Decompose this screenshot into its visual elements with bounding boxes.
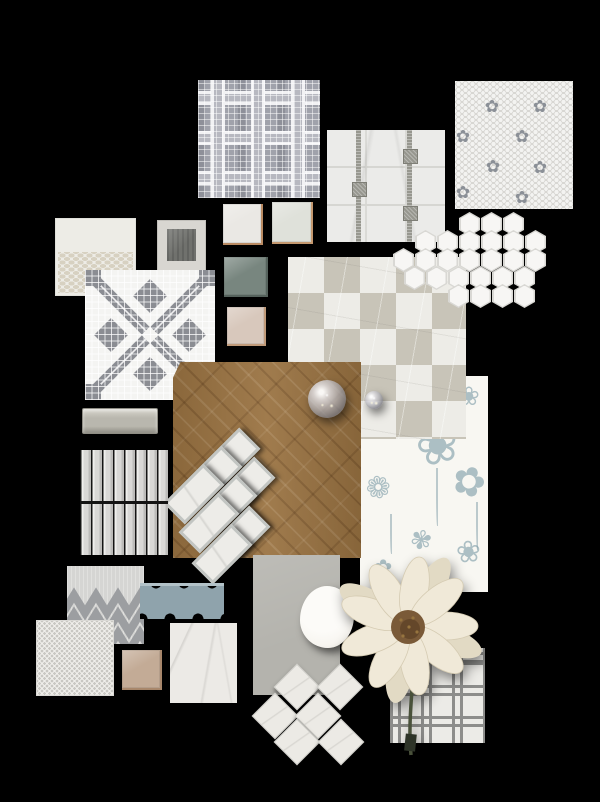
cosmos-flower — [333, 548, 493, 773]
greige-subway-tile — [82, 408, 158, 434]
white-glazed-swatch — [223, 204, 263, 245]
penny-flower-motif: ✿ — [531, 159, 549, 177]
marble-brick-stack — [160, 435, 270, 570]
blush-swatch — [227, 307, 266, 346]
moodboard-canvas: ❀✾❀✿❁✾❀✿✿✿✿✿✿✿✿✿ — [0, 0, 600, 802]
plaid-mosaic-tile — [198, 80, 320, 198]
kitkat-stick-tile — [80, 450, 168, 555]
penny-flower-motif: ✿ — [483, 98, 501, 116]
hexagon-tile — [492, 284, 513, 308]
hexagon-tile — [470, 284, 491, 308]
penny-flower-motif: ✿ — [454, 184, 472, 202]
penny-flower-tile: ✿✿✿✿✿✿✿✿ — [455, 81, 573, 209]
floral-stem — [476, 502, 478, 550]
penny-flower-motif: ✿ — [513, 189, 531, 207]
floral-motif: ❁ — [364, 472, 394, 506]
framed-inner-sample — [167, 229, 196, 261]
glass-sphere-small — [365, 391, 383, 409]
white-marble-tile — [170, 623, 237, 703]
floral-stem — [436, 468, 438, 526]
tile-strip-dot — [352, 182, 367, 197]
glass-sphere-large — [308, 380, 346, 418]
blue-lace-trim-tile — [140, 583, 224, 619]
pale-green-swatch — [272, 202, 313, 244]
tile-strip-dot — [403, 149, 418, 164]
penny-flower-motif: ✿ — [484, 158, 502, 176]
penny-flower-motif: ✿ — [454, 128, 472, 146]
framed-sample — [157, 220, 206, 272]
sage-green-swatch — [224, 257, 268, 297]
bronze-glazed-swatch — [122, 650, 162, 690]
penny-round-tile — [36, 620, 114, 696]
hexagon-mosaic-cluster — [385, 206, 550, 310]
penny-flower-motif: ✿ — [531, 98, 549, 116]
flower-graphic — [333, 548, 493, 773]
penny-flower-motif: ✿ — [513, 128, 531, 146]
hexagon-tile — [448, 284, 469, 308]
hexagon-tile — [514, 284, 535, 308]
